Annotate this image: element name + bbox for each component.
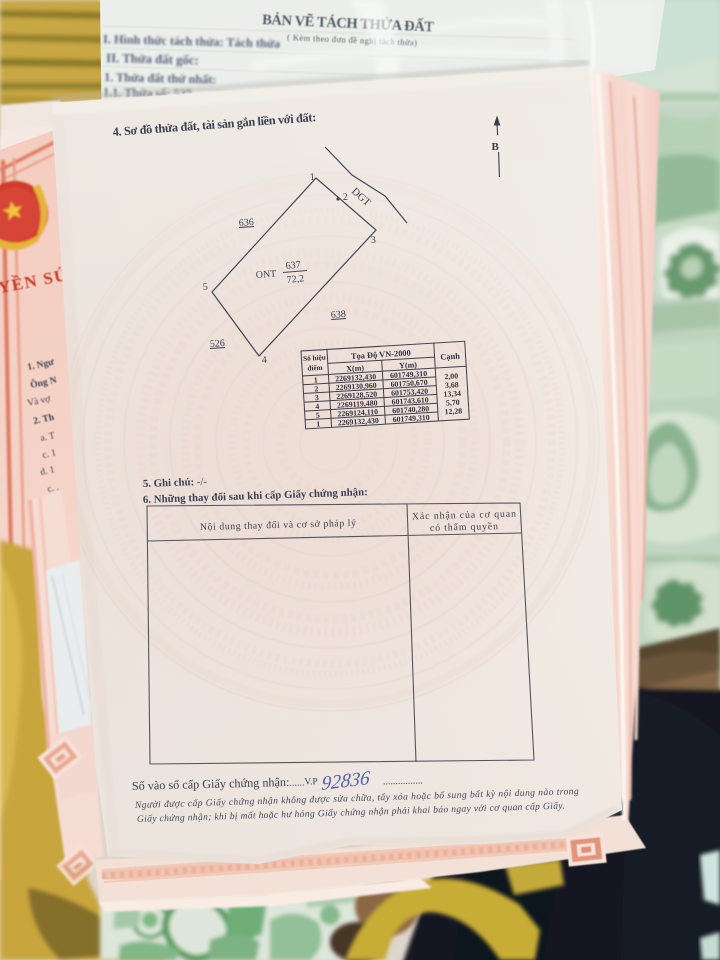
svg-text:................: ................ [383, 775, 423, 787]
svg-text:ONT: ONT [255, 269, 276, 281]
svg-text:1. Thửa đất thứ nhất:: 1. Thửa đất thứ nhất: [104, 70, 217, 87]
svg-text:X(m): X(m) [346, 363, 365, 373]
svg-text:Y(m): Y(m) [399, 360, 418, 370]
svg-text:526: 526 [209, 338, 225, 350]
svg-text:B: B [492, 141, 500, 153]
svg-text:12,28: 12,28 [444, 406, 462, 416]
svg-text:4: 4 [261, 355, 267, 366]
svg-text:Số hiệu: Số hiệu [303, 353, 326, 363]
svg-text:Cạnh: Cạnh [440, 352, 460, 362]
svg-text:1: 1 [316, 419, 321, 428]
svg-text:2: 2 [342, 192, 348, 203]
svg-text:636: 636 [238, 217, 254, 229]
svg-text:72,2: 72,2 [286, 273, 305, 286]
svg-text:637: 637 [285, 259, 301, 272]
svg-text:1: 1 [309, 172, 315, 183]
svg-text:3: 3 [370, 235, 376, 246]
svg-text:5: 5 [202, 282, 208, 293]
svg-text:II. Thửa đất gốc:: II. Thửa đất gốc: [106, 51, 199, 67]
svg-text:có thẩm quyền: có thẩm quyền [430, 521, 498, 534]
svg-text:5. Ghi chú: -/-: 5. Ghi chú: -/- [143, 476, 208, 490]
svg-text:điểm: điểm [307, 363, 323, 373]
svg-text:638: 638 [330, 309, 346, 321]
